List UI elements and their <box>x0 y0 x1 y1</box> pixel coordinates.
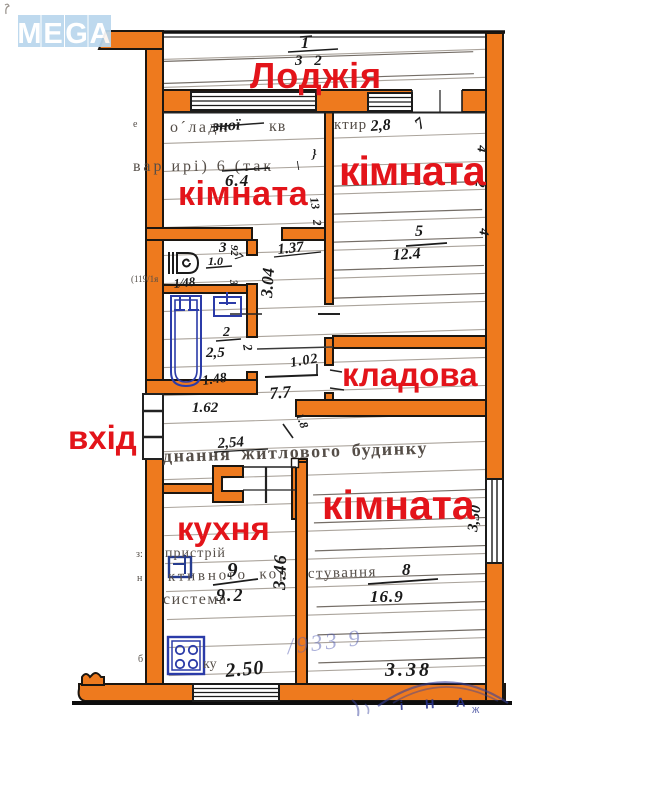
svg-text:б: б <box>138 654 143 665</box>
svg-text:1.0: 1.0 <box>208 254 223 268</box>
svg-text:9.2: 9.2 <box>216 585 245 605</box>
svg-text:1⁄48: 1⁄48 <box>173 274 197 291</box>
svg-text:вхід: вхід <box>68 419 137 456</box>
svg-text:2,5: 2,5 <box>205 345 225 361</box>
svg-text:пристрій: пристрій <box>165 546 226 561</box>
svg-text:7.7: 7.7 <box>269 382 293 403</box>
svg-text:2,8: 2,8 <box>369 117 391 135</box>
svg-text:A: A <box>90 18 111 50</box>
svg-text:е: е <box>133 119 138 130</box>
svg-text:ктир: ктир <box>334 117 367 133</box>
svg-text:ж: ж <box>472 704 480 716</box>
svg-text:кладова: кладова <box>342 356 478 393</box>
svg-text:3.46: 3.46 <box>269 554 290 591</box>
svg-text:}: } <box>311 146 317 161</box>
svg-text:вар ирі) 6 (так: вар ирі) 6 (так <box>133 158 274 175</box>
svg-text:кімната: кімната <box>178 175 309 213</box>
svg-text:Лоджія: Лоджія <box>250 55 382 96</box>
svg-text:2,54: 2,54 <box>216 434 245 452</box>
svg-text:2: 2 <box>222 325 230 340</box>
svg-text:стування: стування <box>308 564 377 582</box>
svg-text:2: 2 <box>310 218 325 226</box>
svg-text:4: 4 <box>475 227 491 236</box>
svg-text:3.38: 3.38 <box>384 659 432 681</box>
svg-text:2.50: 2.50 <box>224 657 266 682</box>
svg-text:13: 13 <box>307 196 323 210</box>
svg-text:8: 8 <box>402 560 411 579</box>
svg-text:кв: кв <box>269 118 286 135</box>
svg-text:M: M <box>17 18 41 50</box>
svg-text:5: 5 <box>415 223 423 240</box>
svg-text:кімната: кімната <box>339 148 487 194</box>
svg-text:(119/1я: (119/1я <box>131 274 158 284</box>
svg-text:\: \ <box>296 159 300 174</box>
svg-text:ку: ку <box>203 657 217 672</box>
svg-text:3.04: 3.04 <box>257 267 278 299</box>
svg-text:1.62: 1.62 <box>192 400 219 416</box>
svg-text:G: G <box>65 18 88 50</box>
svg-text:кухня: кухня <box>177 510 270 547</box>
svg-text:кімната: кімната <box>322 482 476 528</box>
svg-text:E: E <box>43 18 62 50</box>
svg-text:16.9: 16.9 <box>370 587 404 606</box>
svg-text:н: н <box>137 573 143 584</box>
svg-text:1: 1 <box>301 35 309 52</box>
svg-text:12.4: 12.4 <box>392 245 421 264</box>
svg-text:з:: з: <box>136 549 143 560</box>
svg-text:9: 9 <box>227 558 238 582</box>
